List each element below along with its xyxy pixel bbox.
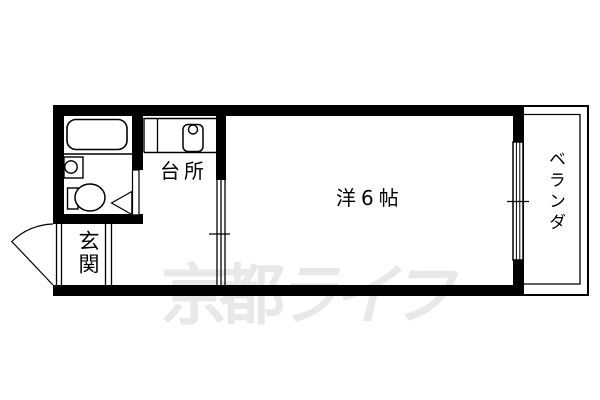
veranda-label: ベランダ (546, 150, 563, 234)
wall-left (53, 105, 64, 224)
entrance-label: 玄関 (77, 230, 98, 276)
bathroom-door-panel (133, 170, 140, 215)
kitchen-faucet (189, 125, 198, 134)
bathroom-door-triangle (112, 192, 132, 215)
wall-bottom (53, 285, 523, 296)
kitchen-label: 台所 (160, 161, 208, 181)
floorplan-canvas: 京都ライフ (0, 0, 600, 400)
wall-kitchen-room-divider (216, 105, 226, 180)
wall-bath-kitchen-divider (132, 105, 143, 170)
main-room-label: 洋6帖 (336, 188, 404, 208)
toilet-bowl (75, 184, 105, 211)
entrance-door-swing (12, 224, 53, 285)
kitchen-counter (144, 119, 216, 153)
sliding-partition (209, 180, 230, 285)
wall-right-lower (513, 260, 523, 296)
wall-right-upper (513, 105, 523, 142)
kitchen (144, 119, 216, 153)
floorplan-drawing (0, 0, 600, 400)
wash-basin-bowl (65, 161, 77, 173)
window (507, 142, 529, 260)
wall-top (53, 105, 523, 116)
bathroom (64, 120, 139, 216)
wall-bathroom-bottom (53, 214, 143, 224)
bathtub (67, 120, 127, 150)
